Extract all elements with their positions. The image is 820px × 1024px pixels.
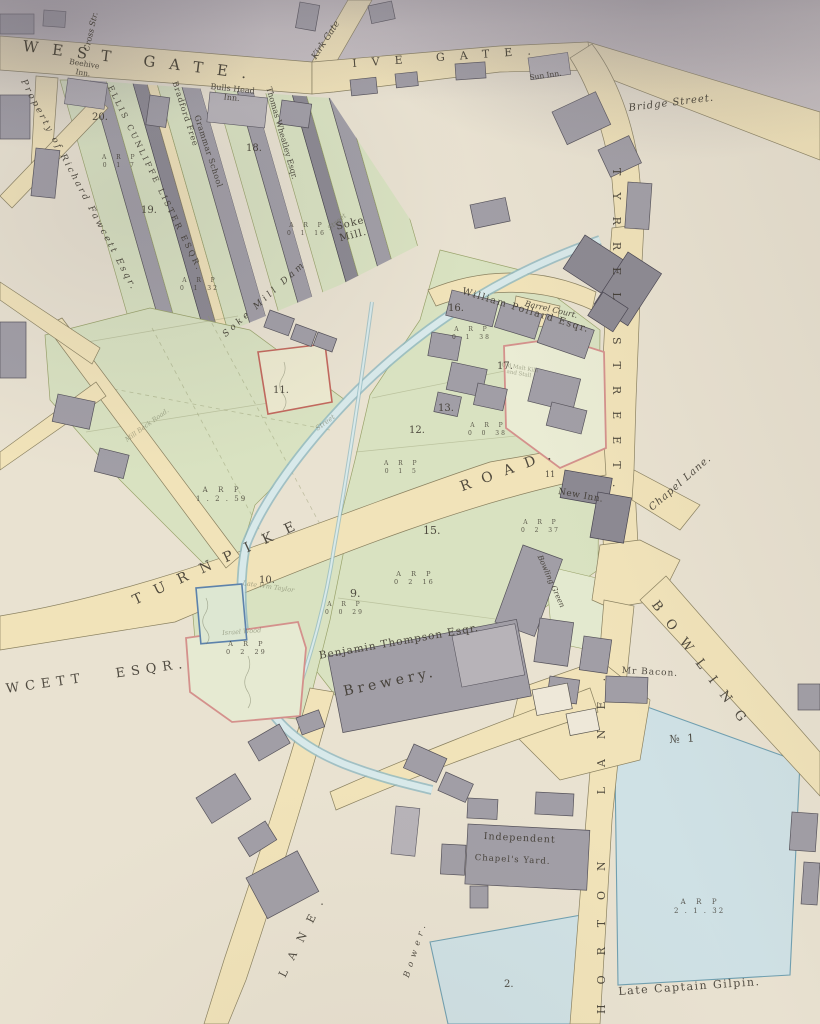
label-kirk-gate: Kirk Gate [310,19,343,61]
map-labels: WEST GATE.IVE GATE.Kirk GateCross Str.Br… [0,0,820,1024]
label-bowling: BOWLING [648,598,757,735]
label-plot-9: 9. [350,588,361,601]
label-street-pencil-1: Street [314,413,337,433]
label-plot-20: 20. [92,112,108,124]
label-beck-road: Mill Beck Road. [124,407,171,444]
label-israel-wood: Israel Wood [222,627,262,637]
label-plot-13: 13. [438,403,454,415]
label-plot-18: 18. [246,143,262,155]
label-plot-19: 19. [141,205,157,217]
label-gilpin: Late Captain Gilpin. [618,976,761,999]
label-arp-14: A R P 1 . 2 . 59 [196,486,247,504]
label-bower: Bower. [402,919,430,979]
label-new-inn: New Inn. [557,487,604,505]
label-plot-10: 10. [259,575,275,587]
label-arp-16: A R P 0 1 38 [452,326,491,342]
label-plot-16: 16. [448,303,464,315]
label-bowling-green: Bowling Green [535,554,566,609]
label-sun-inn: Sun Inn. [529,70,562,83]
label-arp-13: A R P 0 1 5 [384,460,419,476]
label-fawcett-esq: WCETT ESQR. [5,656,189,697]
label-plot-12: 12. [409,425,425,437]
label-wheatley: Thomas Wheatley Esqr. [264,86,299,180]
label-thompson: Benjamin Thompson Esqr. [318,622,480,662]
label-bacon: Mr Bacon. [621,666,678,680]
label-arp-17: A R P 0 0 38 [468,422,507,438]
label-arp-9: A R P 0 0 29 [325,601,364,617]
label-brewery: Brewery. [342,664,438,700]
label-arp-18: A R P 0 1 16 [287,222,326,238]
label-chapel-lane: Chapel Lane. [647,453,714,514]
label-west-gate: WEST GATE. [22,38,262,85]
label-arp-15: A R P 0 2 16 [394,570,435,587]
label-bulls-head-inn: Bulls Head Inn. [209,82,255,105]
label-turnpike: TURNPIKE [130,513,311,609]
label-arp-new-inn: A R P 0 2 37 [521,519,560,535]
label-arp-no-1: A R P 2 . 1 . 32 [674,898,725,916]
historic-town-plan: WEST GATE.IVE GATE.Kirk GateCross Str.Br… [0,0,820,1024]
label-bridge-street: Bridge Street. [628,93,715,115]
label-chapels-yard: Chapel's Yard. [474,853,550,867]
label-tyrrel-street: TYRREL STREET. [609,168,622,504]
label-horton-lane: HORTON LANE. [596,658,609,1014]
label-lane-sw: LANE. [277,888,332,980]
label-soke-mill-dam: Soke Mill Dam [221,259,309,340]
label-arp-20: A R P 0 1 7 [102,154,137,170]
label-grammar-1: Bradford Free [170,80,200,148]
label-plot-17: 17. [497,361,513,373]
label-plot-2: 2. [504,979,514,991]
label-no-1: № 1 [669,733,697,747]
label-ive-gate: IVE GATE. [352,44,546,70]
label-grammar-2: Grammar School [192,114,224,189]
label-beehive-inn: Beehive Inn. [67,58,100,80]
label-plot-11b: 11 [545,470,555,479]
label-arp-10: A R P 0 2 29 [226,640,267,657]
label-independent: Independent [483,831,556,846]
label-arp-19: A R P 0 1 32 [180,277,219,293]
label-plot-11: 11. [273,385,289,397]
label-plot-15: 15. [423,525,441,538]
